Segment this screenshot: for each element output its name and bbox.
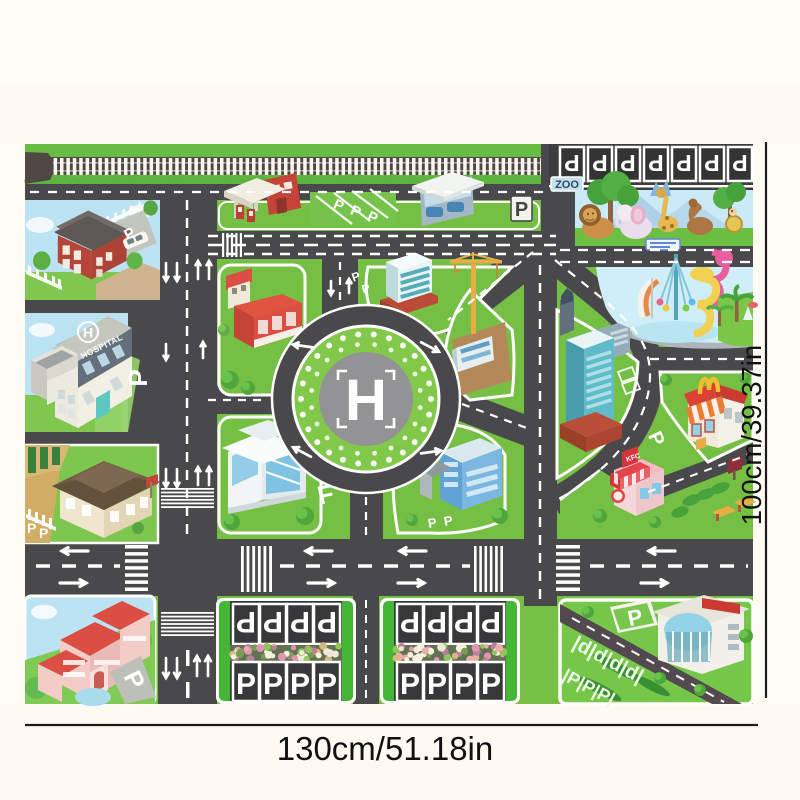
svg-text:130cm/51.18in: 130cm/51.18in [277,730,493,767]
svg-text:100cm/39.37in: 100cm/39.37in [736,345,767,525]
